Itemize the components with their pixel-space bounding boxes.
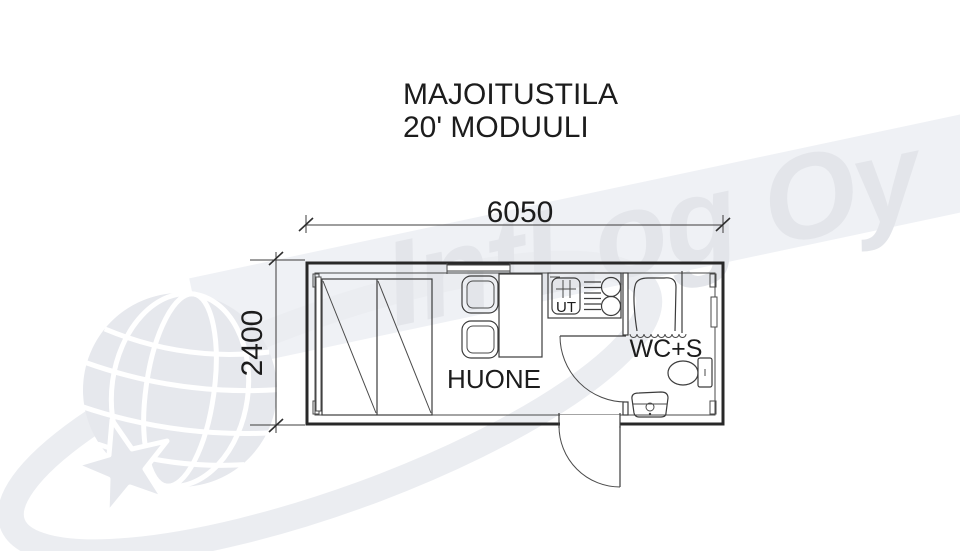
floor-plan-drawing: IntLog Oy MAJOITUSTILA 20' MODUULI 6050 … bbox=[0, 0, 960, 551]
washbasin bbox=[632, 392, 668, 417]
title-line-2: 20' MODUULI bbox=[403, 111, 589, 144]
partition-upper bbox=[623, 273, 628, 335]
partition-lower bbox=[623, 402, 628, 415]
window-top-wall bbox=[447, 265, 510, 271]
window-right-wall bbox=[711, 297, 717, 327]
title-line-1: MAJOITUSTILA bbox=[403, 78, 618, 111]
drawing-title: MAJOITUSTILA 20' MODUULI bbox=[403, 78, 618, 144]
toilet-bowl bbox=[668, 361, 698, 385]
watermark-logo: IntLog Oy bbox=[0, 104, 960, 551]
floor-plan-page: IntLog Oy MAJOITUSTILA 20' MODUULI 6050 … bbox=[0, 0, 960, 551]
entry-door-swing-arc bbox=[559, 426, 620, 487]
window-left-wall bbox=[316, 277, 321, 411]
dimension-length-value: 6050 bbox=[487, 196, 554, 229]
room-label-wc: WC+S bbox=[630, 335, 703, 363]
entry-door-opening bbox=[560, 415, 620, 426]
table bbox=[499, 274, 542, 357]
entry-door bbox=[559, 413, 620, 487]
dimension-width-value: 2400 bbox=[236, 310, 269, 377]
room-label-huone: HUONE bbox=[447, 364, 541, 394]
washbasin-dot bbox=[649, 413, 651, 415]
sink-label: UT bbox=[556, 299, 576, 316]
